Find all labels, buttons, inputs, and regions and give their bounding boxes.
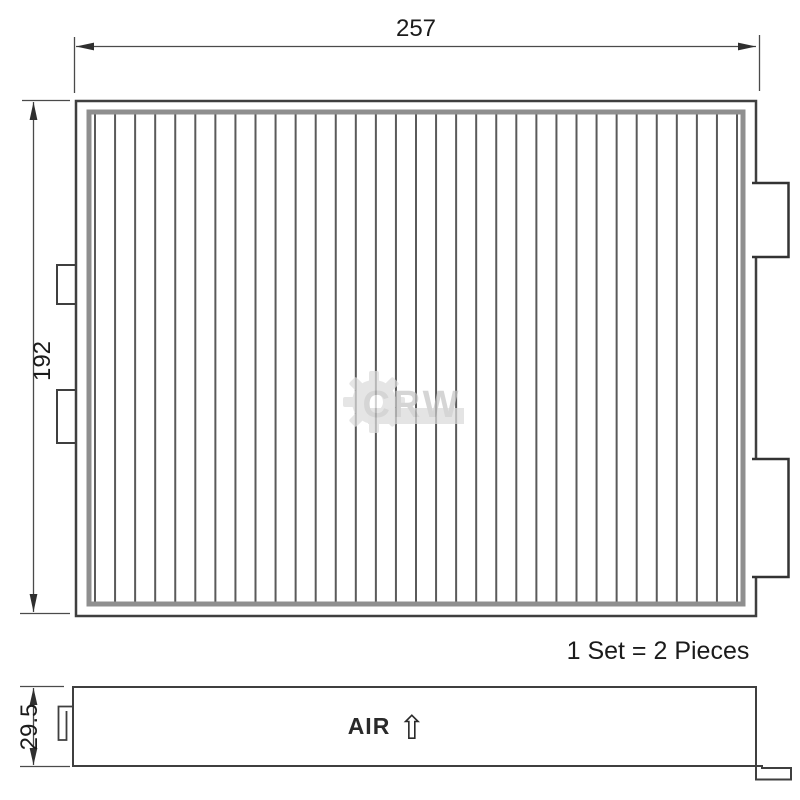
airflow-label: AIR: [348, 713, 391, 739]
tab-opening: [752, 184, 788, 256]
dimension-height-label: 192: [29, 341, 56, 381]
airflow-up-arrow-icon: ⇧: [398, 709, 426, 746]
filter-front-view: [57, 101, 789, 616]
dimension-thickness-label: 29.5: [16, 704, 43, 751]
mounting-tab-left-2: [57, 390, 77, 443]
mounting-tab-right-1: [752, 183, 789, 257]
side-foot-right: [756, 766, 791, 780]
mounting-tab-left-1: [57, 265, 77, 304]
mounting-tab-right-2: [752, 459, 789, 577]
set-note: 1 Set = 2 Pieces: [567, 637, 750, 665]
tab-opening: [752, 460, 788, 576]
technical-drawing-cabin-filter: 257 192: [0, 0, 800, 800]
watermark-label: CRW: [362, 384, 461, 426]
drawing-canvas: 257 192: [0, 0, 800, 800]
dimension-width-label: 257: [396, 15, 436, 42]
filter-side-view: AIR ⇧: [59, 687, 792, 780]
